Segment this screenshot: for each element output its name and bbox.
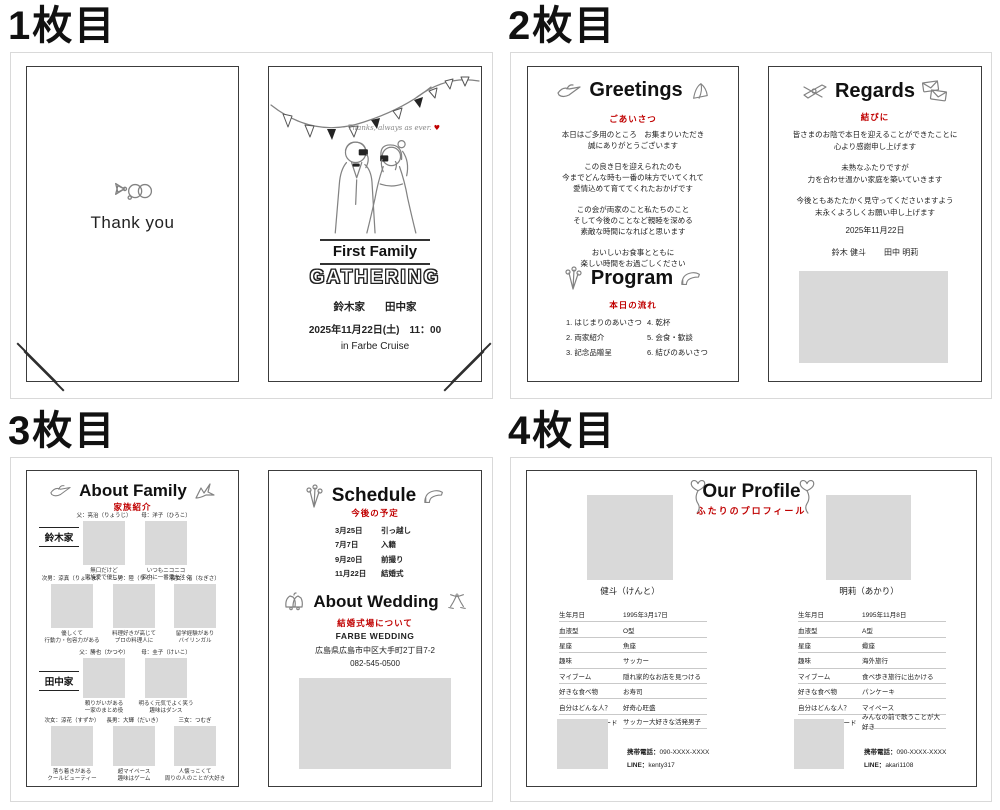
screenshot-canvas: { "colors": {"accent_red": "#c00000", "p… bbox=[0, 0, 1000, 810]
photo-placeholder bbox=[799, 271, 948, 363]
profile-row: 好きな食べ物パンケーキ bbox=[798, 684, 946, 699]
profile-row: マイブーム隠れ家的なお店を見つける bbox=[559, 669, 707, 684]
regards-panel: Regards 結びに 皆さまのお陰で本日を迎えることができたことに 心より感謝… bbox=[768, 66, 982, 382]
title-rule-top bbox=[320, 239, 430, 241]
regards-title: Regards bbox=[835, 80, 915, 103]
greetings-paragraph: この会が両家のこと私たちのこと そして今後のことなど親睦を深める 素敵な時間にな… bbox=[528, 204, 738, 237]
schedule-header: Schedule bbox=[269, 483, 481, 509]
origami-crane-icon bbox=[194, 482, 216, 500]
bouquet-icon bbox=[303, 483, 325, 509]
clothespin-icon bbox=[802, 82, 828, 100]
program-item: 5. 会食・歓談 bbox=[647, 330, 708, 345]
schedule-row: 9月20日前撮り bbox=[335, 552, 411, 567]
schedule-list: 3月25日引っ越し 7月7日入籍 9月20日前撮り 11月22日結婚式 bbox=[335, 523, 411, 581]
about-wedding-header: About Wedding bbox=[269, 591, 481, 613]
venue-name: FARBE WEDDING bbox=[269, 631, 481, 641]
family-name-left: 鈴木家 bbox=[334, 299, 366, 314]
profile-row: 自分はどんな人？好奇心旺盛 bbox=[559, 699, 707, 714]
regards-paragraph: 今後ともあたたかく見守ってくださいますよう 末永くよろしくお願い申し上げます bbox=[769, 195, 981, 218]
about-wedding-subtitle: 結婚式場について bbox=[269, 617, 481, 629]
page3-heading: 3枚目 bbox=[8, 409, 116, 453]
heel-shoe-icon bbox=[423, 487, 447, 505]
program-item: 1. はじまりのあいさつ bbox=[566, 315, 642, 330]
member-photo-placeholder bbox=[174, 584, 216, 628]
family-member: 長女：渚（なぎさ） 留学経験がありバイリンガル bbox=[158, 574, 232, 645]
greetings-paragraph: この良き日を迎えられたのも 今までどんな時も一番の味方でいてくれて 愛情込めて育… bbox=[528, 161, 738, 194]
groom-photo-placeholder bbox=[587, 495, 673, 580]
profile-row: 星座蠍座 bbox=[798, 638, 946, 653]
dove-icon bbox=[49, 484, 72, 498]
cover-family-names: 鈴木家 田中家 bbox=[269, 299, 481, 314]
envelopes-icon bbox=[922, 79, 948, 103]
member-photo-placeholder bbox=[51, 584, 93, 628]
schedule-subtitle: 今後の予定 bbox=[269, 507, 481, 519]
schedule-row: 11月22日結婚式 bbox=[335, 567, 411, 582]
program-subtitle: 本日の流れ bbox=[528, 299, 738, 311]
member-photo-placeholder bbox=[51, 726, 93, 766]
regards-body: 皆さまのお陰で本日を迎えることができたことに 心より感謝申し上げます 未熟なふた… bbox=[769, 129, 981, 228]
photo-placeholder bbox=[299, 678, 451, 769]
groom-name: 鈴木 健斗 bbox=[832, 247, 866, 258]
about-family-panel: About Family 家族紹介 鈴木家 父：亮治（りょうじ） 無口だけど家族… bbox=[26, 470, 239, 787]
title-rule-bottom bbox=[320, 263, 430, 265]
bride-photo-placeholder bbox=[826, 495, 911, 580]
family-member: 母：圭子（けいこ） 明るく元気でよく笑う趣味はダンス bbox=[129, 648, 203, 715]
profile-row: 血液型O型 bbox=[559, 622, 707, 637]
program-item: 4. 乾杯 bbox=[647, 315, 708, 330]
rings-ribbon-icon bbox=[111, 177, 155, 203]
regards-date: 2025年11月22日 bbox=[769, 225, 981, 236]
dove-icon bbox=[556, 83, 582, 99]
bride-contact: 携帯電話：090-XXXX-XXXX LINE：akari1108 bbox=[864, 747, 946, 772]
cover-title-line2: GATHERING bbox=[269, 267, 481, 289]
profile-row: 趣味サッカー bbox=[559, 653, 707, 668]
cover-script-text: Thanks, always as ever. ♥ bbox=[327, 124, 461, 132]
greetings-title: Greetings bbox=[589, 79, 682, 102]
regards-names: 鈴木 健斗 田中 明莉 bbox=[769, 247, 981, 258]
program-list-right: 4. 乾杯 5. 会食・歓談 6. 結びのあいさつ bbox=[647, 315, 708, 360]
family-member: 母：洋子（ひろこ） いつもニコニコ家中に一番愛を注ぐ bbox=[129, 511, 203, 582]
greetings-header: Greetings bbox=[528, 79, 738, 102]
program-header: Program bbox=[528, 265, 738, 291]
regards-paragraph: 未熟なふたりですが 力を合わせ温かい家庭を築いていきます bbox=[769, 162, 981, 185]
heart-glyph: ♥ bbox=[434, 124, 440, 132]
cover-datetime: 2025年11月22日(土) 11：00 bbox=[269, 321, 481, 336]
cover-venue: in Farbe Cruise bbox=[269, 341, 481, 352]
member-photo-placeholder bbox=[83, 521, 125, 565]
greetings-program-panel: Greetings ごあいさつ 本日はご多用のところ お集まりいただき 誠にあり… bbox=[527, 66, 739, 382]
schedule-title: Schedule bbox=[332, 485, 416, 507]
schedule-row: 7月7日入籍 bbox=[335, 538, 411, 553]
bride-small-photo-placeholder bbox=[794, 719, 844, 769]
cover-title-line1: First Family bbox=[269, 243, 481, 260]
bride-profile-table: 生年月日1995年11月8日 血液型A型 星座蠍座 趣味海外旅行 マイブーム食べ… bbox=[798, 607, 946, 729]
profile-row: 趣味海外旅行 bbox=[798, 653, 946, 668]
member-photo-placeholder bbox=[145, 521, 187, 565]
schedule-wedding-panel: Schedule 今後の予定 3月25日引っ越し 7月7日入籍 9月20日前撮り… bbox=[268, 470, 482, 787]
profile-row: 星座魚座 bbox=[559, 638, 707, 653]
groom-profile-table: 生年月日1995年3月17日 血液型O型 星座魚座 趣味サッカー マイブーム隠れ… bbox=[559, 607, 707, 729]
member-photo-placeholder bbox=[113, 726, 155, 766]
member-photo-placeholder bbox=[113, 584, 155, 628]
bouquet-icon bbox=[562, 265, 584, 291]
program-item: 3. 記念品贈呈 bbox=[566, 345, 642, 360]
venue-address: 広島県広島市中区大手町2丁目7-2 bbox=[269, 645, 481, 656]
groom-profile-name: 健斗（けんと） bbox=[564, 585, 696, 597]
wedding-bells-icon bbox=[282, 592, 306, 612]
program-list-left: 1. はじまりのあいさつ 2. 両家紹介 3. 記念品贈呈 bbox=[566, 315, 642, 360]
profile-row: 生年月日1995年11月8日 bbox=[798, 607, 946, 622]
greetings-paragraph: 本日はご多用のところ お集まりいただき 誠にありがとうございます bbox=[528, 129, 738, 151]
bride-profile-name: 明莉（あかり） bbox=[803, 585, 935, 597]
member-photo-placeholder bbox=[83, 658, 125, 698]
greetings-body: 本日はご多用のところ お集まりいただき 誠にありがとうございます この良き日を迎… bbox=[528, 129, 738, 279]
champagne-toast-icon bbox=[446, 591, 468, 613]
regards-header: Regards bbox=[769, 79, 981, 103]
profile-row: 生年月日1995年3月17日 bbox=[559, 607, 707, 622]
about-wedding-title: About Wedding bbox=[313, 592, 438, 612]
page1-heading: 1枚目 bbox=[8, 4, 116, 48]
couple-illustration bbox=[321, 135, 425, 237]
greetings-subtitle: ごあいさつ bbox=[528, 113, 738, 125]
regards-subtitle: 結びに bbox=[769, 111, 981, 123]
page4-heading: 4枚目 bbox=[508, 409, 616, 453]
profile-row: 血液型A型 bbox=[798, 622, 946, 637]
schedule-row: 3月25日引っ越し bbox=[335, 523, 411, 538]
front-cover-panel: Thanks, always as ever. ♥ First Family G… bbox=[268, 66, 482, 382]
member-photo-placeholder bbox=[145, 658, 187, 698]
back-cover-panel: Thank you bbox=[26, 66, 239, 382]
groom-small-photo-placeholder bbox=[557, 719, 608, 769]
program-item: 2. 両家紹介 bbox=[566, 330, 642, 345]
profile-row: 好きな食べ物お寿司 bbox=[559, 684, 707, 699]
regards-paragraph: 皆さまのお陰で本日を迎えることができたことに 心より感謝申し上げます bbox=[769, 129, 981, 152]
page2-heading: 2枚目 bbox=[508, 4, 616, 48]
about-family-title: About Family bbox=[79, 481, 187, 501]
family-name-right: 田中家 bbox=[385, 299, 417, 314]
heel-shoe-icon bbox=[680, 269, 704, 287]
family-member: 三女：つむぎ 人懐っこくて周りの人のことが大好き bbox=[158, 716, 232, 783]
bride-name: 田中 明莉 bbox=[884, 247, 918, 258]
venue-phone: 082-545-0500 bbox=[269, 659, 481, 668]
groom-contact: 携帯電話：090-XXXX-XXXX LINE：kenty317 bbox=[627, 747, 709, 772]
about-family-header: About Family bbox=[27, 481, 238, 501]
lily-icon bbox=[690, 81, 710, 101]
profile-row: マイブーム食べ歩き旅行に出かける bbox=[798, 669, 946, 684]
thank-you-text: Thank you bbox=[27, 213, 238, 233]
our-profile-panel: Our Profile ふたりのプロフィール 健斗（けんと） 明莉（あかり） 生… bbox=[526, 470, 977, 787]
member-photo-placeholder bbox=[174, 726, 216, 766]
program-title: Program bbox=[591, 267, 673, 290]
program-item: 6. 結びのあいさつ bbox=[647, 345, 708, 360]
